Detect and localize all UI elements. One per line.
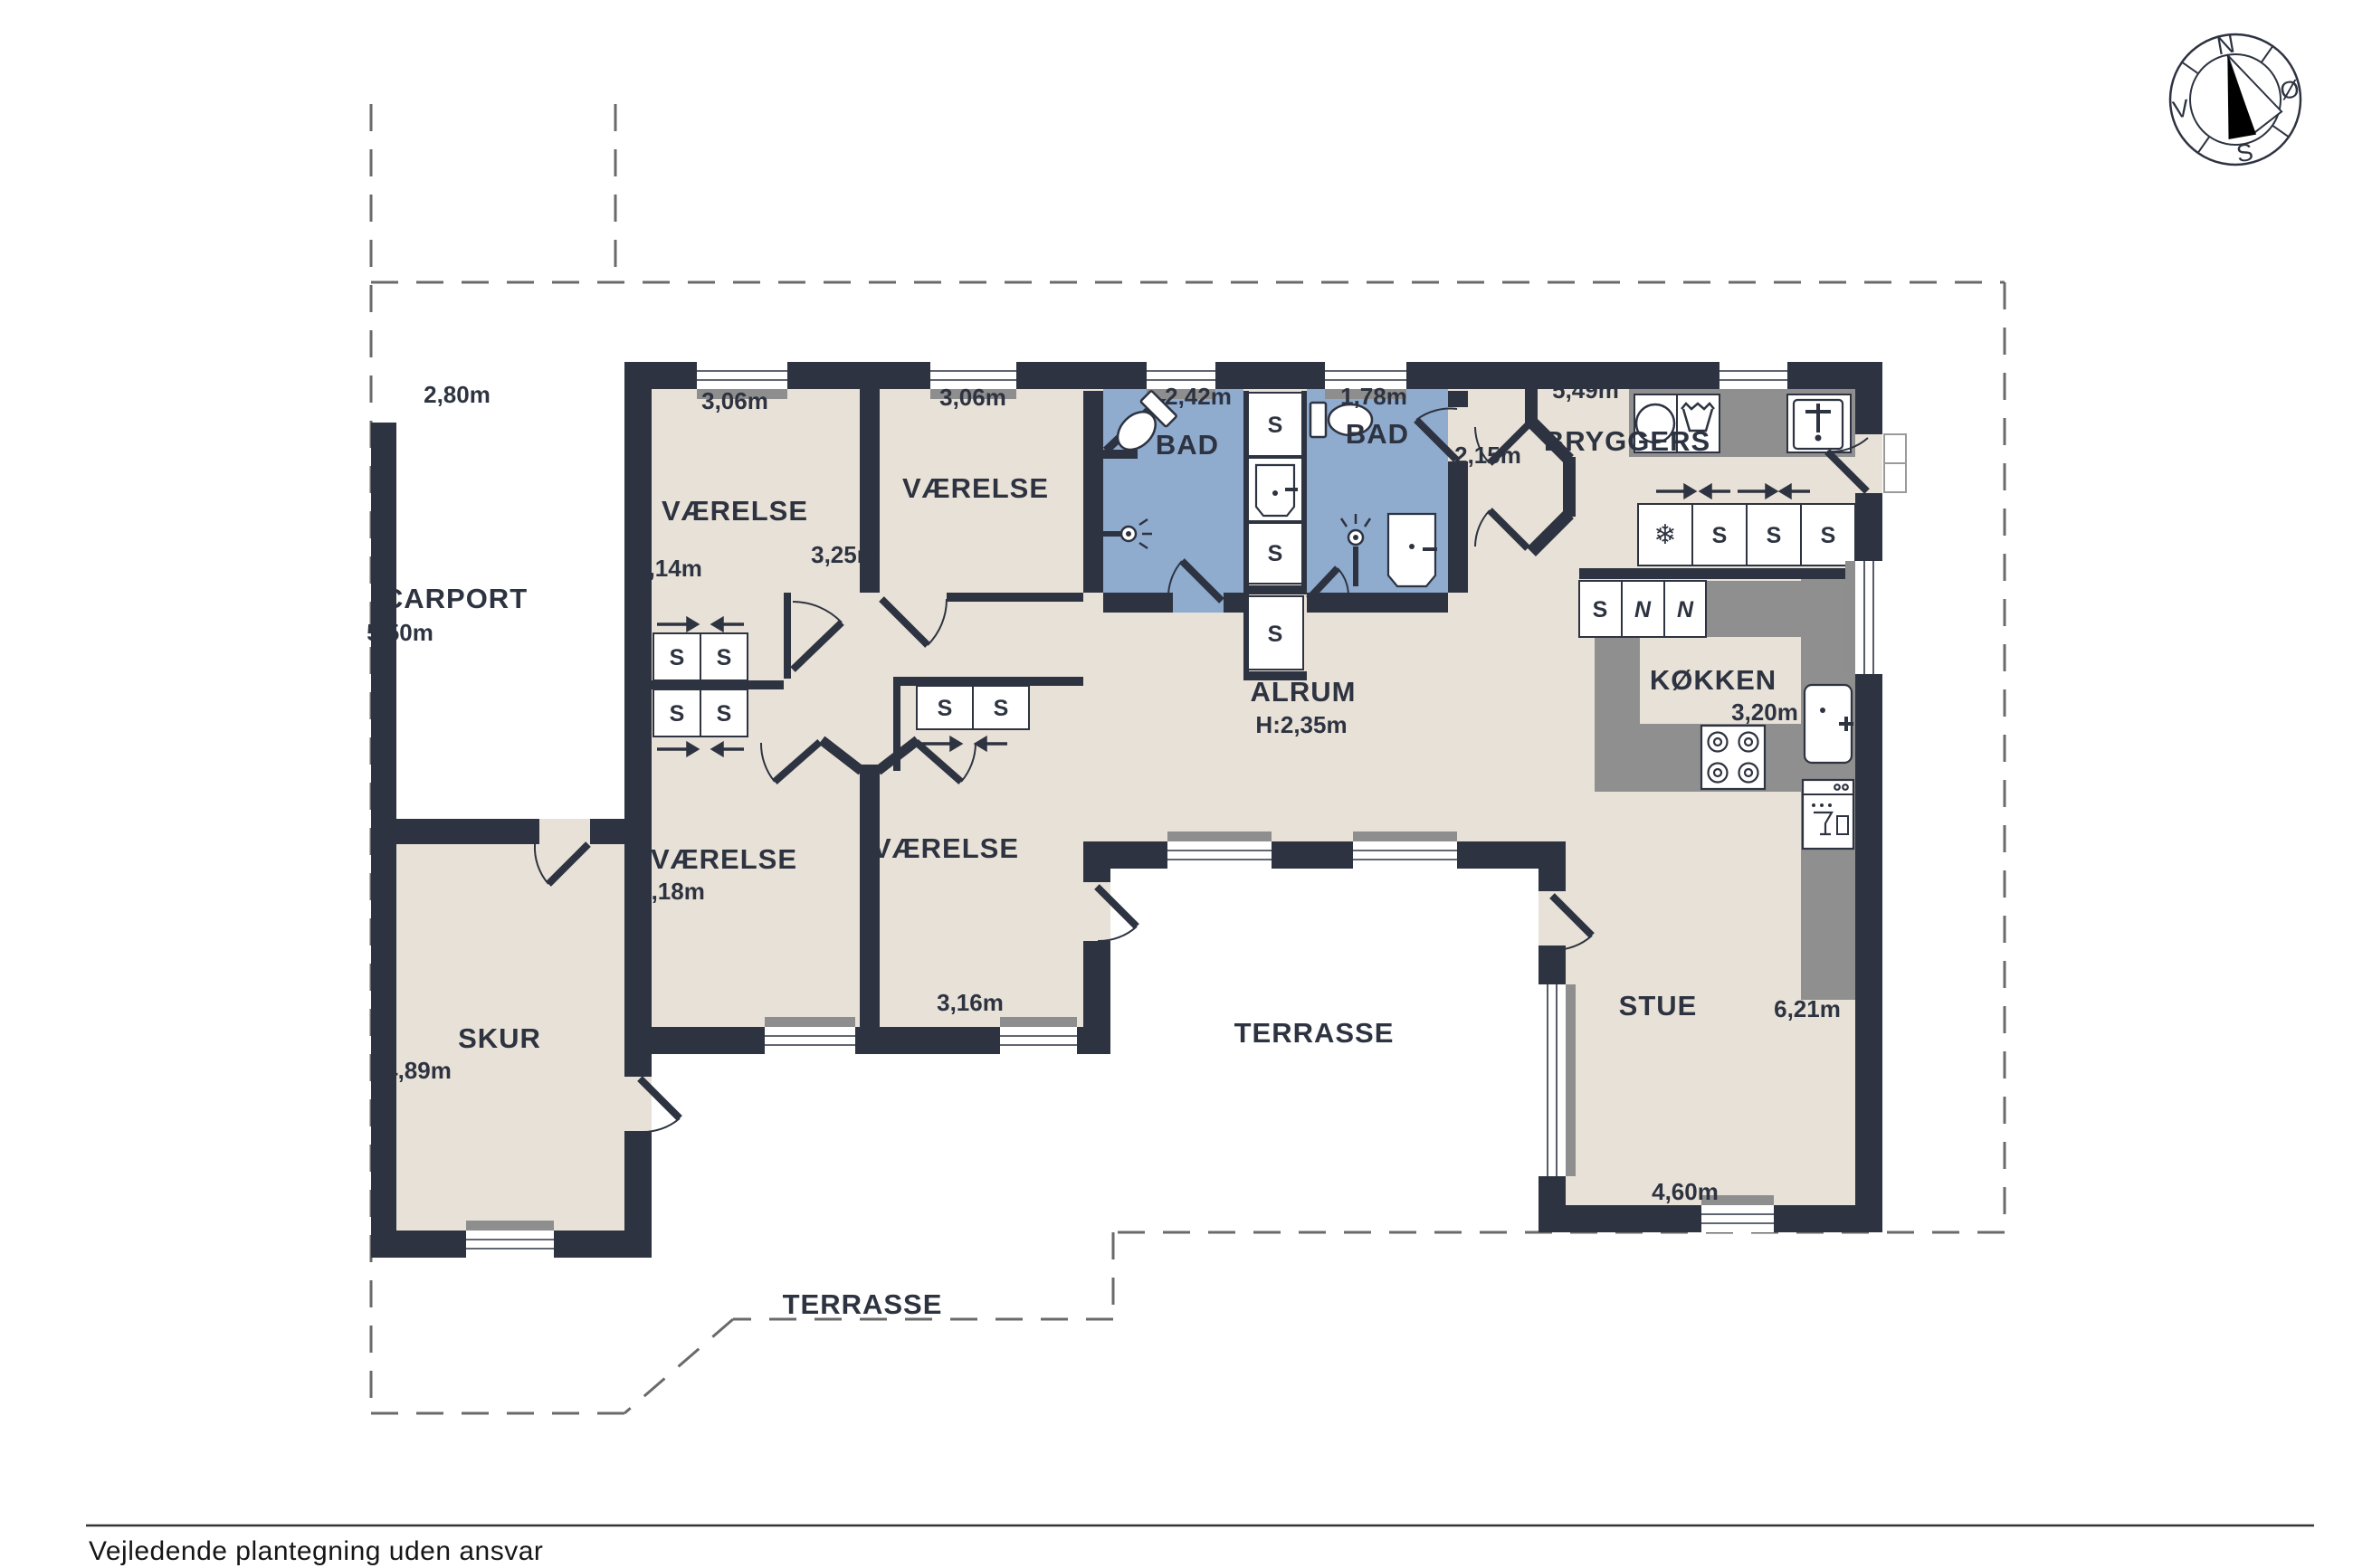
dim-vaerelse-n-w: 3,06m	[939, 384, 1006, 411]
footer-note: Vejledende plantegning uden ansvar	[89, 1536, 543, 1566]
closet-br-3: S	[1821, 523, 1836, 548]
closet-sw-1: S	[670, 701, 685, 727]
dim-bad-2: 1,78m	[1340, 383, 1407, 410]
room-bryggers: BRYGGERS	[1544, 425, 1710, 457]
closet-sw-2: S	[717, 701, 732, 727]
floorplan-drawing: N Ø S V Vejledende plantegning uden ansv…	[0, 0, 2353, 1568]
stove-icon	[1701, 726, 1765, 789]
room-carport: CARPORT	[383, 583, 528, 614]
footer: Vejledende plantegning uden ansvar	[86, 1525, 2314, 1566]
closet-s-1: S	[938, 696, 953, 721]
closet-col-1: S	[1268, 413, 1283, 438]
dim-alrum-height: H:2,35m	[1255, 711, 1347, 738]
room-vaerelse-nw: VÆRELSE	[662, 495, 808, 527]
fridge-icon: ❄	[1653, 520, 1676, 550]
oven-icon-2: N	[1677, 597, 1694, 622]
dim-skur: 4,89m	[385, 1057, 452, 1084]
entry-step	[1884, 434, 1906, 492]
utility-sink-icon	[1794, 400, 1843, 449]
dishwasher-icon	[1803, 780, 1853, 849]
dim-vaerelse-s: 3,16m	[937, 989, 1004, 1016]
floors	[371, 362, 1882, 1258]
dim-bryggers: 5,49m	[1552, 376, 1619, 404]
dim-stue-w: 4,60m	[1652, 1178, 1719, 1205]
dim-vaerelse-sw: 4,18m	[638, 878, 705, 905]
closet-col-3: S	[1268, 622, 1283, 647]
closet-col-2: S	[1268, 541, 1283, 566]
room-bad-2: BAD	[1346, 418, 1409, 450]
dim-bad-1: 2,42m	[1165, 383, 1232, 410]
room-vaerelse-sw: VÆRELSE	[651, 843, 797, 875]
dim-entry: 2,15m	[1454, 442, 1521, 469]
dim-carport-width: 2,80m	[424, 381, 491, 408]
closet-nw-1: S	[670, 645, 685, 670]
room-skur: SKUR	[458, 1022, 541, 1054]
room-terrasse-sw: TERRASSE	[783, 1288, 943, 1320]
closet-br-2: S	[1767, 523, 1782, 548]
closet-k-1: S	[1593, 597, 1608, 622]
floorplan-page: N Ø S V Vejledende plantegning uden ansv…	[0, 0, 2353, 1568]
dim-vaerelse-nw-2: 3,25m	[811, 541, 878, 568]
room-terrasse-mid: TERRASSE	[1234, 1017, 1395, 1049]
room-alrum: ALRUM	[1251, 676, 1357, 708]
dim-vaerelse-nw-h: 4,14m	[635, 555, 702, 582]
oven-icon-1: N	[1634, 597, 1652, 622]
dim-vaerelse-nw-w: 3,06m	[701, 387, 768, 414]
closet-s-2: S	[994, 696, 1009, 721]
room-vaerelse-n: VÆRELSE	[902, 472, 1049, 504]
closet-nw-2: S	[717, 645, 732, 670]
dim-stue-h: 6,21m	[1774, 995, 1841, 1022]
room-stue: STUE	[1619, 990, 1698, 1022]
room-kokken: KØKKEN	[1650, 664, 1777, 696]
room-vaerelse-s: VÆRELSE	[872, 832, 1019, 864]
dim-kokken: 3,20m	[1731, 698, 1798, 726]
kitchen-sink-icon	[1805, 685, 1853, 763]
closet-br-1: S	[1712, 523, 1728, 548]
sink-icon	[1256, 465, 1298, 516]
dim-carport-depth: 5,50m	[367, 619, 433, 646]
compass-rose: N Ø S V	[2159, 21, 2311, 178]
room-bad-1: BAD	[1156, 429, 1219, 461]
sink-icon	[1388, 514, 1437, 586]
